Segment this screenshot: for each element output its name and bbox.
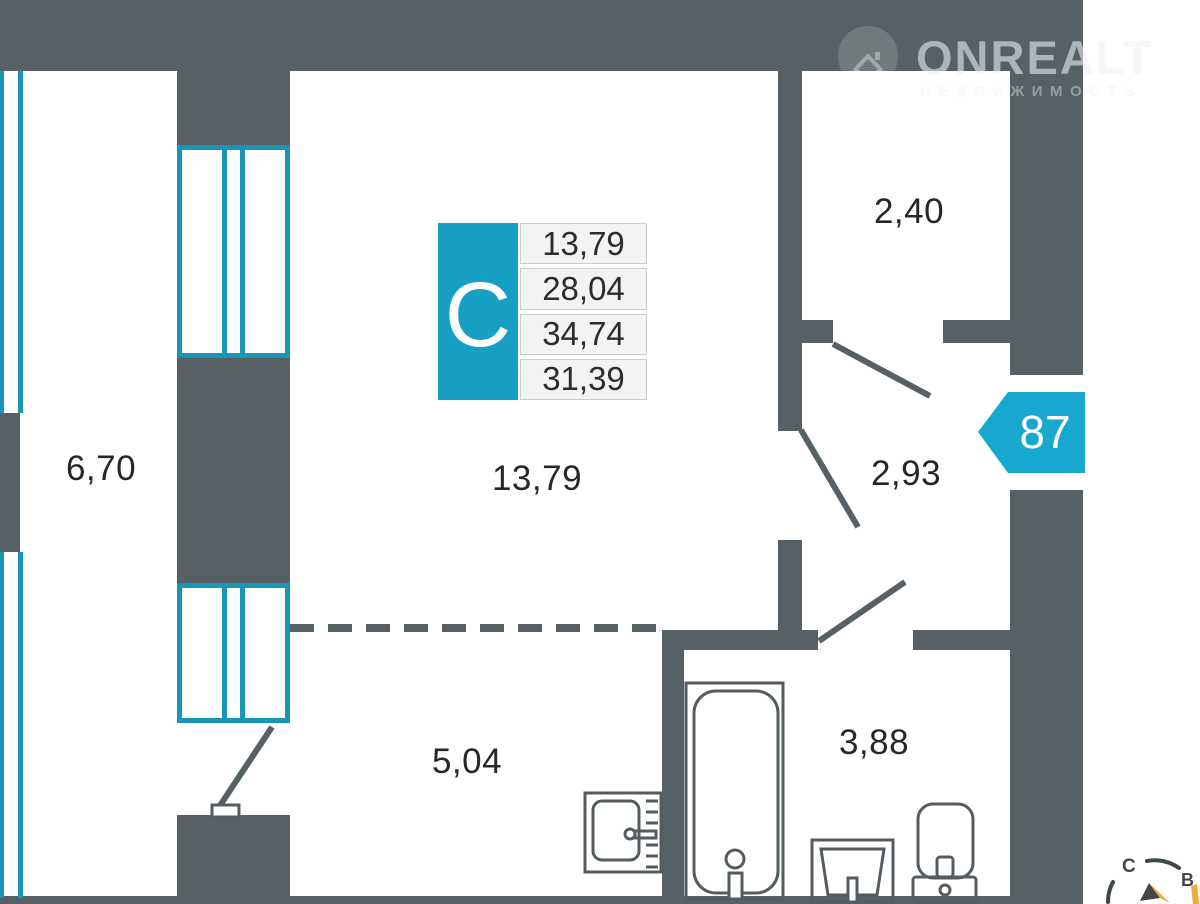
window-upper-v1 xyxy=(177,145,182,358)
room-label-balcony: 6,70 xyxy=(66,449,136,489)
area-row: 34,74 xyxy=(520,314,647,355)
window-balcony-left-a1 xyxy=(0,71,4,413)
wall-right-bottom xyxy=(1010,490,1083,904)
wall-balcony-col-top xyxy=(177,71,290,148)
logo-brand-text: ONREALT xyxy=(916,30,1154,85)
room-label-living: 13,79 xyxy=(492,459,582,499)
wall-living-hall-sep xyxy=(778,71,802,431)
room-label-hall: 2,93 xyxy=(871,454,941,494)
toilet-icon xyxy=(913,804,976,902)
unit-info-card: С 13,79 28,04 34,74 31,39 xyxy=(438,223,647,400)
wall-bottom-strip xyxy=(0,896,1083,904)
floor-plan: 6,70 13,79 2,40 2,93 5,04 3,88 С 13,79 2… xyxy=(0,0,1200,904)
kitchen-sink-icon xyxy=(585,793,661,872)
wall-bath-left xyxy=(662,650,684,904)
door-hall xyxy=(801,430,858,527)
window-lower-bot xyxy=(177,718,290,723)
compass-needle-yellow xyxy=(1149,883,1170,903)
washbasin-icon xyxy=(812,840,893,902)
door-balcony xyxy=(219,727,272,807)
window-lower-top xyxy=(177,583,290,588)
window-balcony-left-a2 xyxy=(18,71,23,413)
window-upper-top xyxy=(177,145,290,150)
room-label-top: 2,40 xyxy=(874,192,944,232)
compass-north-label: С xyxy=(1122,856,1136,878)
area-row: 13,79 xyxy=(520,223,647,264)
window-upper-v3 xyxy=(240,145,245,358)
unit-area-table: 13,79 28,04 34,74 31,39 xyxy=(520,223,647,400)
wall-balcony-col-mid xyxy=(177,355,290,583)
window-lower-v4 xyxy=(285,583,290,723)
door-room240 xyxy=(833,344,930,396)
wall-left-pier xyxy=(0,413,20,552)
window-upper-v4 xyxy=(285,145,290,358)
window-lower-v2 xyxy=(222,583,227,723)
window-balcony-left-b2 xyxy=(18,552,23,898)
window-lower-v3 xyxy=(240,583,245,723)
wall-room240-stub-r xyxy=(943,320,1010,343)
door-bath xyxy=(819,582,905,641)
wall-room240-stub-l xyxy=(802,320,833,343)
window-upper-v2 xyxy=(222,145,227,358)
area-row: 31,39 xyxy=(520,359,647,400)
wall-bath-top-right xyxy=(913,630,1010,650)
logo-tagline-text: НЕДВИЖИМОСТЬ xyxy=(920,83,1142,100)
bathtub-icon xyxy=(686,683,783,899)
wall-balcony-col-bot xyxy=(177,815,290,898)
window-balcony-left-b1 xyxy=(0,552,4,898)
area-row: 28,04 xyxy=(520,268,647,309)
room-label-kitchen: 5,04 xyxy=(432,742,502,782)
window-upper-bot xyxy=(177,353,290,358)
room-label-bath: 3,88 xyxy=(839,723,909,763)
unit-number-badge: 87 xyxy=(1004,405,1086,459)
compass-needle-dark xyxy=(1140,883,1160,901)
wall-bath-top-left xyxy=(662,630,818,650)
unit-type-letter: С xyxy=(438,223,518,400)
window-lower-v1 xyxy=(177,583,182,723)
compass-east-label: В xyxy=(1181,870,1194,891)
wall-right-top xyxy=(1010,71,1083,375)
